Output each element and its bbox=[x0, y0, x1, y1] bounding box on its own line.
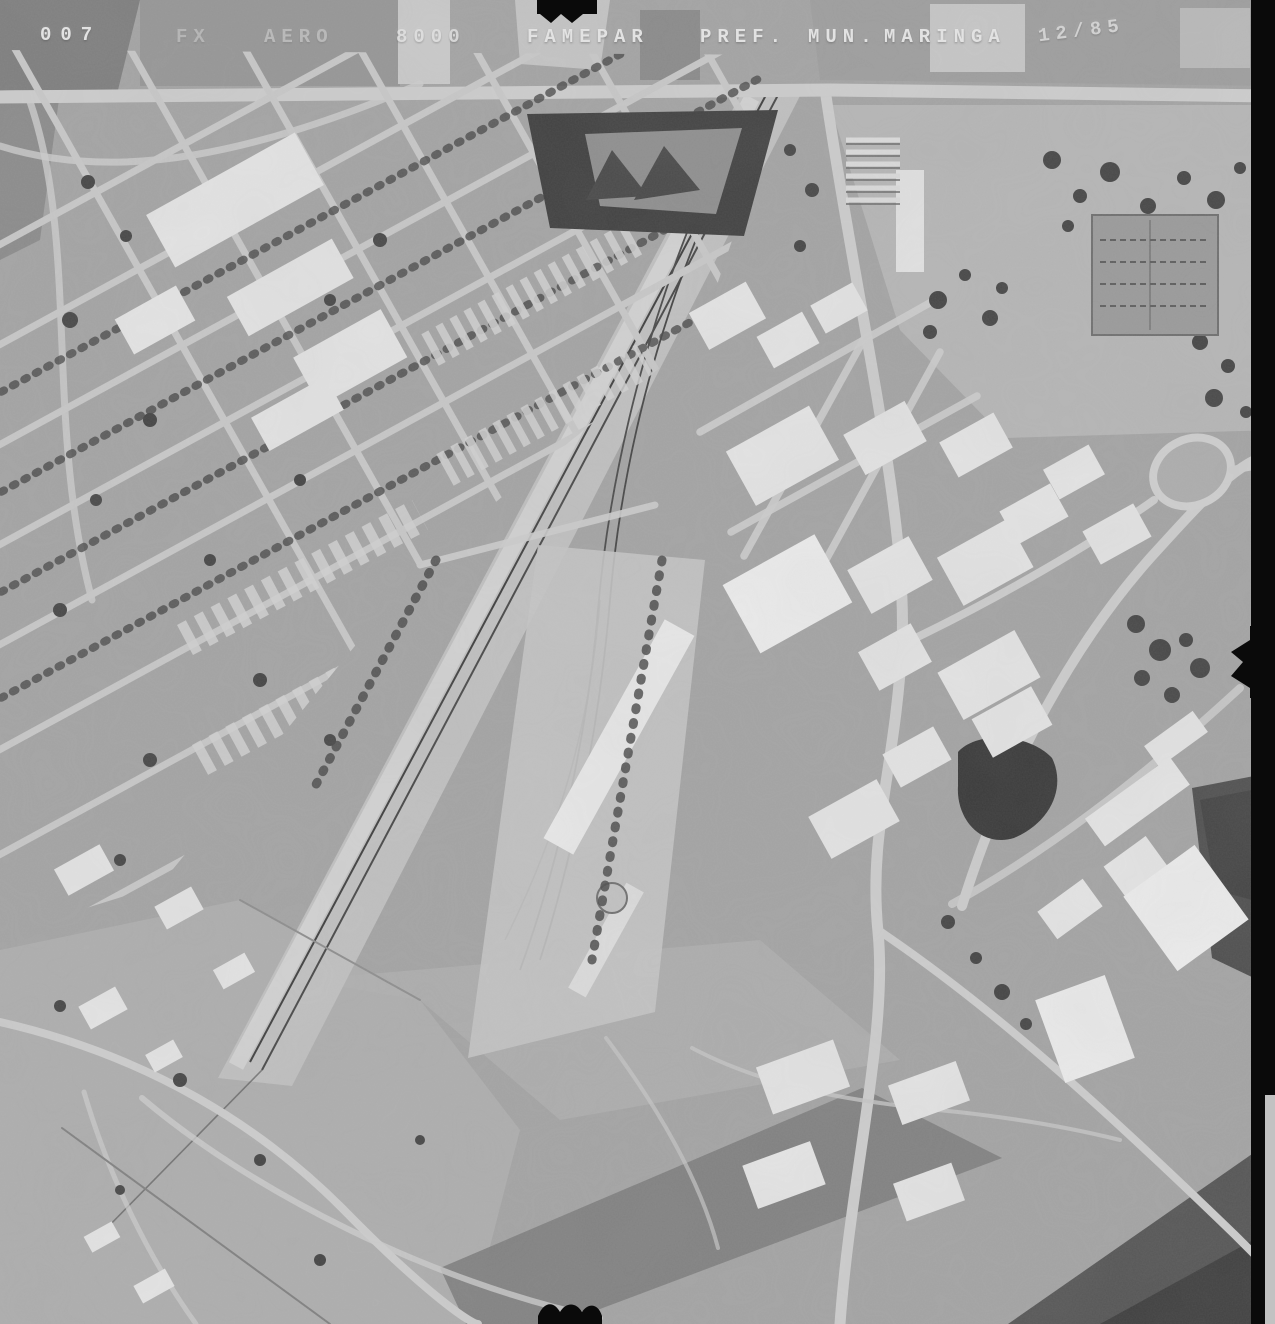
film-grain-overlay bbox=[0, 0, 1275, 1324]
aerial-photo-canvas bbox=[0, 0, 1275, 1324]
aerial-photograph: 007 FX AERO 8000 FAMEPAR PREF. MUN. MARI… bbox=[0, 0, 1275, 1324]
bottom-fiducial-mark bbox=[538, 1304, 602, 1324]
